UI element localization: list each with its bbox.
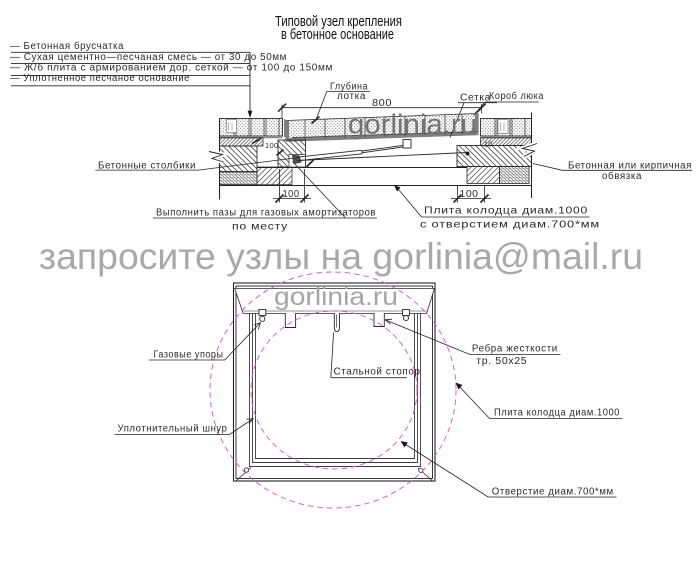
svg-text:Уплотнительный шнур: Уплотнительный шнур: [118, 424, 228, 435]
svg-text:Газовые упоры: Газовые упоры: [154, 350, 224, 361]
svg-text:в бетонное основание: в бетонное основание: [281, 27, 394, 43]
svg-text:— Уплотненное песчаное основа: — Уплотненное песчаное основание: [10, 73, 190, 84]
svg-text:обвязка: обвязка: [602, 170, 642, 182]
svg-text:Отверстие диам.700*мм: Отверстие диам.700*мм: [492, 487, 614, 498]
svg-text:100: 100: [283, 188, 300, 200]
svg-text:10: 10: [484, 142, 492, 149]
svg-text:100: 100: [460, 188, 479, 200]
svg-text:с отверстием диам.700*мм: с отверстием диам.700*мм: [420, 220, 600, 231]
svg-text:Бетонная или кирпичная: Бетонная или кирпичная: [568, 161, 692, 172]
svg-text:Ребра жесткости: Ребра жесткости: [472, 343, 558, 355]
svg-text:тр. 50х25: тр. 50х25: [476, 356, 527, 367]
svg-text:gorlinia.ru: gorlinia.ru: [348, 109, 477, 140]
svg-text:Плита колодца диам.1000: Плита колодца диам.1000: [424, 206, 588, 217]
svg-text:Стальной стопор: Стальной стопор: [334, 367, 421, 378]
svg-text:Короб люка: Короб люка: [489, 90, 544, 102]
svg-text:Плита колодца диам.1000: Плита колодца диам.1000: [494, 408, 620, 419]
svg-text:— Ж/б плита с армированием до: — Ж/б плита с армированием дор. сеткой —…: [10, 62, 333, 74]
svg-text:gorlinia.ru: gorlinia.ru: [274, 283, 398, 311]
svg-text:по месту: по месту: [232, 222, 288, 233]
svg-text:— Сухая цементно—песчаная сме: — Сухая цементно—песчаная смесь — от 30 …: [10, 52, 287, 63]
svg-text:лотка: лотка: [337, 91, 366, 102]
svg-text:— Бетонная брусчатка: — Бетонная брусчатка: [10, 40, 124, 52]
svg-text:Выполнить пазы для газовых амо: Выполнить пазы для газовых амортизаторов: [156, 208, 376, 219]
svg-text:800: 800: [372, 97, 392, 109]
svg-text:100: 100: [265, 141, 278, 150]
svg-text:запросите узлы на gorlinia@mai: запросите узлы на gorlinia@mail.ru: [39, 236, 643, 277]
svg-text:Бетонные столбики: Бетонные столбики: [98, 160, 196, 172]
